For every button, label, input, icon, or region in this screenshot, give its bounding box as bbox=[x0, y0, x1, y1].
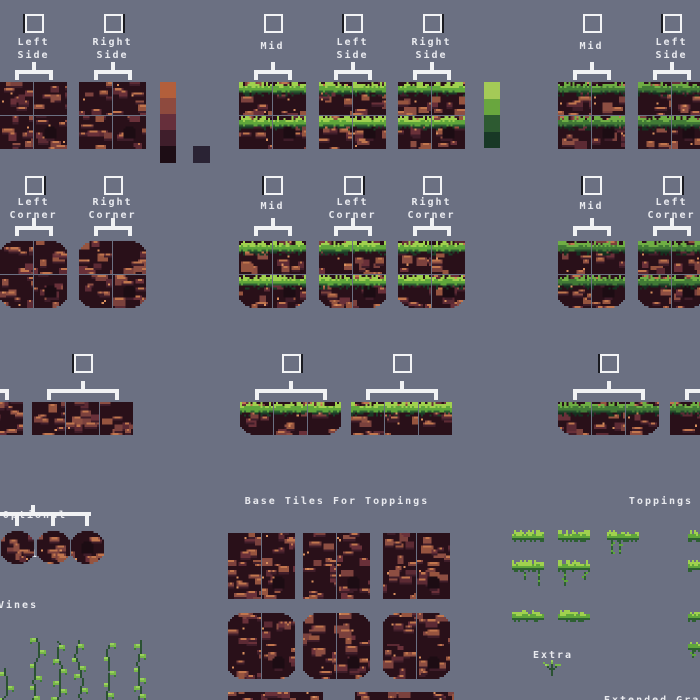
optional-bracket-prong bbox=[15, 516, 19, 526]
base-tiles-title: Base Tiles For Toppings bbox=[187, 495, 487, 508]
vine-sprite bbox=[51, 641, 67, 700]
dirt-palette bbox=[160, 82, 176, 98]
base-tile bbox=[290, 692, 323, 700]
tile-darkgrass bbox=[558, 82, 591, 115]
group-bracket-prong bbox=[653, 74, 657, 80]
base-tile bbox=[303, 533, 336, 566]
vine-sprite bbox=[134, 640, 150, 700]
group-bracket-prong bbox=[288, 230, 292, 236]
tile-grass bbox=[351, 402, 384, 435]
tile-darkgrass bbox=[638, 116, 671, 149]
group-checkbox[interactable] bbox=[25, 176, 44, 195]
group-bracket-prong bbox=[573, 230, 577, 236]
base-tile bbox=[262, 566, 295, 599]
tile-darkgrass bbox=[638, 275, 671, 308]
group-bracket-stem bbox=[590, 218, 594, 226]
tile-grass bbox=[432, 82, 465, 115]
tile-grass bbox=[398, 116, 431, 149]
base-tile bbox=[228, 566, 261, 599]
optional-tile bbox=[1, 531, 34, 564]
tile-dirt bbox=[34, 116, 67, 149]
base-tile bbox=[417, 646, 450, 679]
vine-sprite bbox=[104, 643, 120, 700]
dirt-extra-swatch bbox=[193, 146, 210, 163]
tile-grass bbox=[273, 82, 306, 115]
group-bracket-prong bbox=[368, 230, 372, 236]
tile-dirt bbox=[79, 241, 112, 274]
group-checkbox[interactable] bbox=[583, 176, 602, 195]
group-bracket-prong bbox=[334, 230, 338, 236]
tile-grass bbox=[398, 241, 431, 274]
tile-dirt bbox=[34, 275, 67, 308]
tile-darkgrass bbox=[672, 82, 700, 115]
tile-group-label: Right bbox=[53, 196, 173, 209]
grass-palette bbox=[484, 115, 500, 132]
topping-sprite bbox=[558, 560, 590, 586]
tile-grass bbox=[432, 116, 465, 149]
tile-dirt bbox=[34, 82, 67, 115]
tile-dirt bbox=[79, 116, 112, 149]
dirt-palette bbox=[160, 98, 176, 114]
tile-dirt bbox=[0, 116, 33, 149]
vines-title: Vines bbox=[0, 599, 98, 612]
tile-darkgrass bbox=[672, 241, 700, 274]
tile-grass bbox=[398, 275, 431, 308]
tile-darkgrass bbox=[558, 402, 591, 435]
tile-grass bbox=[240, 402, 273, 435]
group-checkbox[interactable] bbox=[25, 14, 44, 33]
tile-darkgrass bbox=[626, 402, 659, 435]
tile-darkgrass bbox=[638, 82, 671, 115]
group-checkbox[interactable] bbox=[600, 354, 619, 373]
tile-dirt bbox=[0, 241, 33, 274]
group-bracket-prong bbox=[49, 230, 53, 236]
tile-group-label: Right bbox=[372, 196, 492, 209]
tile-grass bbox=[239, 82, 272, 115]
group-checkbox[interactable] bbox=[344, 176, 363, 195]
tile-dirt bbox=[34, 241, 67, 274]
optional-tile bbox=[71, 531, 104, 564]
tile-darkgrass bbox=[592, 402, 625, 435]
group-bracket-prong bbox=[685, 393, 689, 400]
group-bracket-stem bbox=[111, 62, 115, 70]
topping-sprite bbox=[558, 530, 590, 544]
group-checkbox[interactable] bbox=[393, 354, 412, 373]
group-bracket-stem bbox=[607, 381, 611, 389]
tile-darkgrass bbox=[592, 275, 625, 308]
base-tile bbox=[417, 566, 450, 599]
group-checkbox[interactable] bbox=[344, 14, 363, 33]
grass-palette bbox=[484, 99, 500, 115]
tile-grass bbox=[353, 275, 386, 308]
topping-sprite bbox=[607, 530, 639, 556]
base-tile bbox=[417, 613, 450, 646]
group-bracket-bar bbox=[334, 70, 372, 74]
base-tile bbox=[228, 533, 261, 566]
tile-grass bbox=[319, 82, 352, 115]
base-tile bbox=[337, 646, 370, 679]
base-tile bbox=[388, 692, 421, 700]
tile-group-label: Corner bbox=[53, 209, 173, 222]
optional-bracket-bar bbox=[0, 512, 91, 516]
group-bracket-bar bbox=[653, 226, 691, 230]
group-bracket-prong bbox=[49, 74, 53, 80]
group-checkbox[interactable] bbox=[282, 354, 301, 373]
group-bracket-stem bbox=[430, 62, 434, 70]
group-checkbox[interactable] bbox=[423, 176, 442, 195]
topping-sprite bbox=[688, 640, 700, 666]
base-tile bbox=[303, 613, 336, 646]
base-tile bbox=[417, 533, 450, 566]
group-bracket-bar bbox=[254, 226, 292, 230]
group-checkbox[interactable] bbox=[583, 14, 602, 33]
topping-sprite bbox=[688, 610, 700, 624]
tile-grass bbox=[398, 82, 431, 115]
group-bracket-stem bbox=[289, 381, 293, 389]
group-bracket-prong bbox=[254, 74, 258, 80]
tile-dirt bbox=[32, 402, 65, 435]
group-bracket-stem bbox=[400, 381, 404, 389]
group-bracket-prong bbox=[687, 74, 691, 80]
tile-group-label: Side bbox=[53, 49, 173, 62]
optional-bracket-prong bbox=[51, 516, 55, 526]
tile-darkgrass bbox=[638, 241, 671, 274]
tile-darkgrass bbox=[592, 116, 625, 149]
dirt-palette bbox=[160, 114, 176, 130]
grass-palette bbox=[484, 132, 500, 148]
tile-dirt bbox=[113, 116, 146, 149]
grass-palette bbox=[484, 82, 500, 99]
base-tile bbox=[262, 646, 295, 679]
base-tile bbox=[355, 692, 388, 700]
tile-darkgrass bbox=[670, 402, 700, 435]
group-bracket-bar bbox=[15, 226, 53, 230]
tile-group-label: Right bbox=[372, 36, 492, 49]
base-tile bbox=[303, 566, 336, 599]
group-bracket-stem bbox=[32, 62, 36, 70]
tile-dirt bbox=[0, 82, 33, 115]
tile-grass bbox=[353, 241, 386, 274]
tile-dirt bbox=[79, 82, 112, 115]
group-checkbox[interactable] bbox=[663, 176, 682, 195]
group-bracket-prong bbox=[434, 393, 438, 400]
group-bracket-prong bbox=[5, 393, 9, 400]
base-tile bbox=[303, 646, 336, 679]
vine-sprite bbox=[72, 640, 88, 700]
topping-sprite bbox=[512, 560, 544, 586]
tile-group-label: Right bbox=[53, 36, 173, 49]
group-bracket-prong bbox=[447, 74, 451, 80]
tile-grass bbox=[239, 116, 272, 149]
base-tile bbox=[262, 613, 295, 646]
group-bracket-bar bbox=[15, 70, 53, 74]
group-bracket-bar bbox=[94, 226, 132, 230]
tile-dirt bbox=[0, 402, 23, 435]
tile-grass bbox=[419, 402, 452, 435]
group-bracket-prong bbox=[128, 230, 132, 236]
group-bracket-bar bbox=[334, 226, 372, 230]
tileset-sheet: Optional Tiles Base Tiles For Toppings T… bbox=[0, 0, 700, 700]
base-tile bbox=[337, 613, 370, 646]
topping-sprite bbox=[512, 530, 544, 544]
tile-grass bbox=[273, 275, 306, 308]
tile-group-label: Corner bbox=[372, 209, 492, 222]
group-checkbox[interactable] bbox=[74, 354, 93, 373]
group-bracket-prong bbox=[573, 74, 577, 80]
tile-darkgrass bbox=[672, 275, 700, 308]
tile-darkgrass bbox=[672, 116, 700, 149]
group-bracket-prong bbox=[323, 393, 327, 400]
group-bracket-stem bbox=[351, 62, 355, 70]
base-tile bbox=[383, 646, 416, 679]
tile-grass bbox=[432, 275, 465, 308]
group-bracket-bar bbox=[413, 226, 451, 230]
tile-grass bbox=[239, 275, 272, 308]
group-checkbox[interactable] bbox=[264, 14, 283, 33]
group-bracket-prong bbox=[94, 74, 98, 80]
group-bracket-prong bbox=[94, 230, 98, 236]
group-bracket-prong bbox=[115, 393, 119, 400]
group-bracket-stem bbox=[670, 62, 674, 70]
tile-darkgrass bbox=[558, 241, 591, 274]
tile-group-label: Side bbox=[372, 49, 492, 62]
base-tile bbox=[337, 566, 370, 599]
group-bracket-prong bbox=[15, 230, 19, 236]
group-bracket-bar bbox=[94, 70, 132, 74]
topping-sprite bbox=[688, 560, 700, 586]
tile-darkgrass bbox=[558, 275, 591, 308]
tile-grass bbox=[353, 116, 386, 149]
tile-group-label: Corner bbox=[612, 209, 700, 222]
vine-sprite bbox=[0, 668, 14, 700]
base-tile bbox=[259, 692, 292, 700]
group-bracket-bar bbox=[47, 389, 119, 393]
topping-sprite bbox=[512, 610, 544, 624]
group-bracket-prong bbox=[128, 74, 132, 80]
group-bracket-prong bbox=[607, 230, 611, 236]
group-bracket-prong bbox=[47, 393, 51, 400]
group-bracket-prong bbox=[447, 230, 451, 236]
group-bracket-prong bbox=[15, 74, 19, 80]
dirt-palette bbox=[160, 130, 176, 146]
optional-bracket-prong bbox=[85, 516, 89, 526]
dirt-palette bbox=[160, 146, 176, 163]
group-bracket-bar bbox=[653, 70, 691, 74]
group-bracket-stem bbox=[271, 218, 275, 226]
tile-grass bbox=[432, 241, 465, 274]
toppings-title: Toppings bbox=[561, 495, 700, 508]
tile-grass bbox=[319, 241, 352, 274]
topping-sprite bbox=[688, 530, 700, 544]
base-tile bbox=[228, 692, 261, 700]
vine-sprite bbox=[30, 638, 46, 700]
group-bracket-stem bbox=[590, 62, 594, 70]
tile-grass bbox=[353, 82, 386, 115]
group-bracket-bar bbox=[413, 70, 451, 74]
group-checkbox[interactable] bbox=[104, 14, 123, 33]
tile-dirt bbox=[79, 275, 112, 308]
group-bracket-prong bbox=[641, 393, 645, 400]
group-bracket-stem bbox=[81, 381, 85, 389]
base-tile bbox=[262, 533, 295, 566]
extended-grass-title: Extended Grass bbox=[604, 694, 700, 700]
tile-grass bbox=[273, 116, 306, 149]
group-bracket-prong bbox=[687, 230, 691, 236]
tile-darkgrass bbox=[592, 241, 625, 274]
group-bracket-prong bbox=[255, 393, 259, 400]
group-bracket-prong bbox=[413, 74, 417, 80]
group-bracket-prong bbox=[254, 230, 258, 236]
group-bracket-bar bbox=[366, 389, 438, 393]
optional-bracket-stem bbox=[31, 505, 35, 512]
tile-grass bbox=[239, 241, 272, 274]
tile-darkgrass bbox=[558, 116, 591, 149]
group-bracket-prong bbox=[334, 74, 338, 80]
tile-dirt bbox=[0, 275, 33, 308]
group-checkbox[interactable] bbox=[104, 176, 123, 195]
tile-darkgrass bbox=[592, 82, 625, 115]
group-bracket-bar bbox=[573, 389, 645, 393]
base-tile bbox=[228, 613, 261, 646]
tile-dirt bbox=[100, 402, 133, 435]
optional-tile bbox=[37, 531, 70, 564]
group-bracket-prong bbox=[573, 393, 577, 400]
group-bracket-stem bbox=[271, 62, 275, 70]
tile-dirt bbox=[113, 82, 146, 115]
tile-grass bbox=[319, 116, 352, 149]
group-bracket-prong bbox=[653, 230, 657, 236]
topping-sprite bbox=[558, 610, 590, 624]
group-checkbox[interactable] bbox=[423, 14, 442, 33]
tile-dirt bbox=[113, 275, 146, 308]
group-checkbox[interactable] bbox=[264, 176, 283, 195]
group-checkbox[interactable] bbox=[663, 14, 682, 33]
extra-plant-sprite bbox=[541, 660, 565, 676]
tile-grass bbox=[319, 275, 352, 308]
base-tile bbox=[383, 566, 416, 599]
base-tile bbox=[228, 646, 261, 679]
tile-group-label: Left bbox=[612, 196, 700, 209]
group-bracket-prong bbox=[413, 230, 417, 236]
tile-dirt bbox=[113, 241, 146, 274]
group-bracket-bar bbox=[255, 389, 327, 393]
group-bracket-bar bbox=[573, 226, 611, 230]
tile-dirt bbox=[66, 402, 99, 435]
tile-group-label: Side bbox=[612, 49, 700, 62]
group-bracket-bar bbox=[254, 70, 292, 74]
base-tile bbox=[337, 533, 370, 566]
tile-grass bbox=[385, 402, 418, 435]
group-bracket-prong bbox=[368, 74, 372, 80]
tile-grass bbox=[308, 402, 341, 435]
group-bracket-prong bbox=[366, 393, 370, 400]
group-bracket-prong bbox=[288, 74, 292, 80]
base-tile bbox=[383, 533, 416, 566]
tile-group-label: Left bbox=[612, 36, 700, 49]
tile-grass bbox=[273, 241, 306, 274]
tile-grass bbox=[274, 402, 307, 435]
group-bracket-bar bbox=[573, 70, 611, 74]
base-tile bbox=[421, 692, 454, 700]
base-tile bbox=[383, 613, 416, 646]
group-bracket-prong bbox=[607, 74, 611, 80]
